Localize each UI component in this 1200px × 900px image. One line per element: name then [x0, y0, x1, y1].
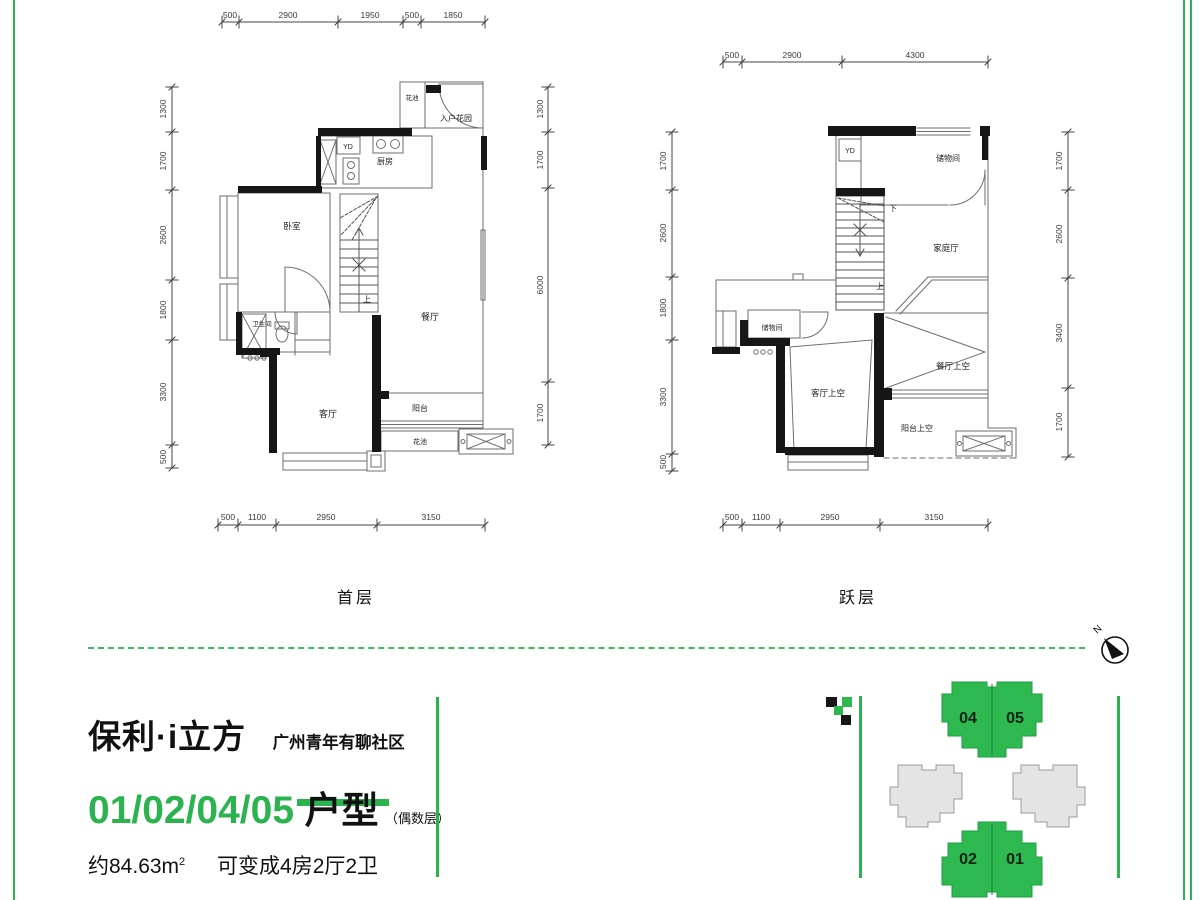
unit-row: 01/02/04/05 户型 （偶数层） [88, 780, 438, 834]
gray-tower-east [1013, 765, 1085, 827]
svg-text:1100: 1100 [752, 512, 771, 522]
first-floor-walls-black [236, 85, 487, 453]
svg-text:餐厅上空: 餐厅上空 [936, 361, 970, 371]
area-row: 约84.63m2 可变成4房2厅2卫 [88, 850, 438, 880]
svg-text:储物间: 储物间 [762, 323, 783, 332]
svg-text:2600: 2600 [158, 225, 168, 244]
svg-text:卫生间: 卫生间 [252, 319, 272, 328]
svg-text:1950: 1950 [361, 10, 380, 20]
green-tower-south [942, 822, 1042, 897]
green-tower-north [942, 682, 1042, 757]
svg-text:下: 下 [889, 204, 897, 213]
svg-text:1100: 1100 [248, 512, 267, 522]
svg-text:1800: 1800 [658, 298, 668, 317]
brand-name: 保利·i立方 [88, 718, 246, 755]
section-divider-dashed-line [88, 647, 1085, 649]
svg-text:2900: 2900 [783, 50, 802, 60]
unit-05-label: 05 [1006, 710, 1024, 727]
svg-text:500: 500 [158, 450, 168, 464]
svg-text:客厅: 客厅 [319, 408, 337, 419]
svg-text:2950: 2950 [821, 512, 840, 522]
svg-text:1700: 1700 [1054, 151, 1064, 170]
svg-text:3400: 3400 [1054, 323, 1064, 342]
area-superscript: 2 [179, 856, 185, 868]
branding-block: 保利·i立方 广州青年有聊社区 01/02/04/05 户型 （偶数层） 约84… [88, 710, 438, 880]
svg-text:2600: 2600 [1054, 224, 1064, 243]
svg-text:3300: 3300 [158, 382, 168, 401]
svg-text:阳台上空: 阳台上空 [901, 423, 933, 433]
svg-text:储物间: 储物间 [936, 153, 960, 163]
svg-text:YD: YD [845, 148, 855, 155]
svg-text:1700: 1700 [1054, 412, 1064, 431]
svg-text:1700: 1700 [658, 151, 668, 170]
gray-tower-west [890, 765, 962, 827]
svg-text:500: 500 [221, 512, 235, 522]
svg-text:花池: 花池 [413, 437, 427, 446]
svg-text:500: 500 [405, 10, 419, 20]
loft-walls-black [712, 126, 990, 457]
svg-text:上: 上 [876, 282, 884, 291]
area-value: 约84.63m [88, 855, 179, 878]
svg-text:家庭厅: 家庭厅 [933, 243, 959, 253]
loft-walls-thin [716, 128, 1016, 470]
loft-floor-caption: 跃层 [818, 584, 898, 608]
svg-text:2600: 2600 [658, 223, 668, 242]
svg-text:N: N [1092, 623, 1105, 636]
svg-text:客厅上空: 客厅上空 [811, 388, 845, 398]
branding-right-rule [436, 697, 439, 877]
svg-text:1700: 1700 [158, 151, 168, 170]
siteplan-diagram: 04 05 02 01 [810, 660, 1120, 900]
unit-numbers: 01/02/04/05 [88, 789, 294, 832]
svg-text:4300: 4300 [906, 50, 925, 60]
svg-text:1850: 1850 [444, 10, 463, 20]
community-name: 广州青年有聊社区 [273, 734, 405, 752]
svg-text:2950: 2950 [317, 512, 336, 522]
first-floor-caption: 首层 [316, 584, 396, 608]
svg-text:1700: 1700 [535, 403, 545, 422]
first-floor-dimension-labels: 500 2900 1950 500 1850 500 1100 2950 315… [158, 10, 545, 522]
first-floor-plan: 500 2900 1950 500 1850 500 1100 2950 315… [158, 10, 554, 531]
svg-text:3150: 3150 [422, 512, 441, 522]
svg-text:3150: 3150 [925, 512, 944, 522]
svg-text:阳台: 阳台 [412, 403, 428, 413]
svg-text:3300: 3300 [658, 387, 668, 406]
svg-text:2900: 2900 [279, 10, 298, 20]
svg-text:1300: 1300 [158, 99, 168, 118]
unit-04-label: 04 [959, 710, 977, 727]
svg-text:500: 500 [658, 455, 668, 469]
floor-parity-note: （偶数层） [385, 811, 450, 826]
unit-02-label: 02 [959, 851, 977, 868]
svg-text:厨房: 厨房 [377, 156, 393, 166]
svg-text:花池: 花池 [406, 93, 420, 102]
svg-text:YD: YD [343, 144, 353, 151]
floorplans-drawing: 500 2900 1950 500 1850 500 1100 2950 315… [0, 0, 1200, 620]
unit-type-label: 户型 [304, 790, 378, 831]
unit-01-label: 01 [1006, 851, 1024, 868]
svg-text:1700: 1700 [535, 150, 545, 169]
svg-text:卧室: 卧室 [283, 221, 301, 231]
svg-text:餐厅: 餐厅 [421, 311, 439, 322]
svg-text:1800: 1800 [158, 300, 168, 319]
convertibility-description: 可变成4房2厅2卫 [217, 855, 378, 878]
first-floor-stairs [340, 196, 378, 312]
svg-text:500: 500 [725, 512, 739, 522]
svg-text:1300: 1300 [535, 99, 545, 118]
svg-text:500: 500 [223, 10, 237, 20]
svg-text:入户花园: 入户花园 [440, 113, 472, 123]
checker-motif [826, 697, 852, 725]
svg-text:500: 500 [725, 50, 739, 60]
svg-text:6000: 6000 [535, 275, 545, 294]
floorplan-page: 500 2900 1950 500 1850 500 1100 2950 315… [0, 0, 1200, 900]
loft-stairs [836, 196, 884, 310]
loft-floor-plan: 500 2900 4300 500 1100 2950 3150 1700 26… [658, 50, 1074, 531]
unit-type-wrap: 户型 [304, 780, 378, 834]
brand-row: 保利·i立方 广州青年有聊社区 [88, 710, 438, 758]
svg-text:上: 上 [363, 295, 371, 304]
